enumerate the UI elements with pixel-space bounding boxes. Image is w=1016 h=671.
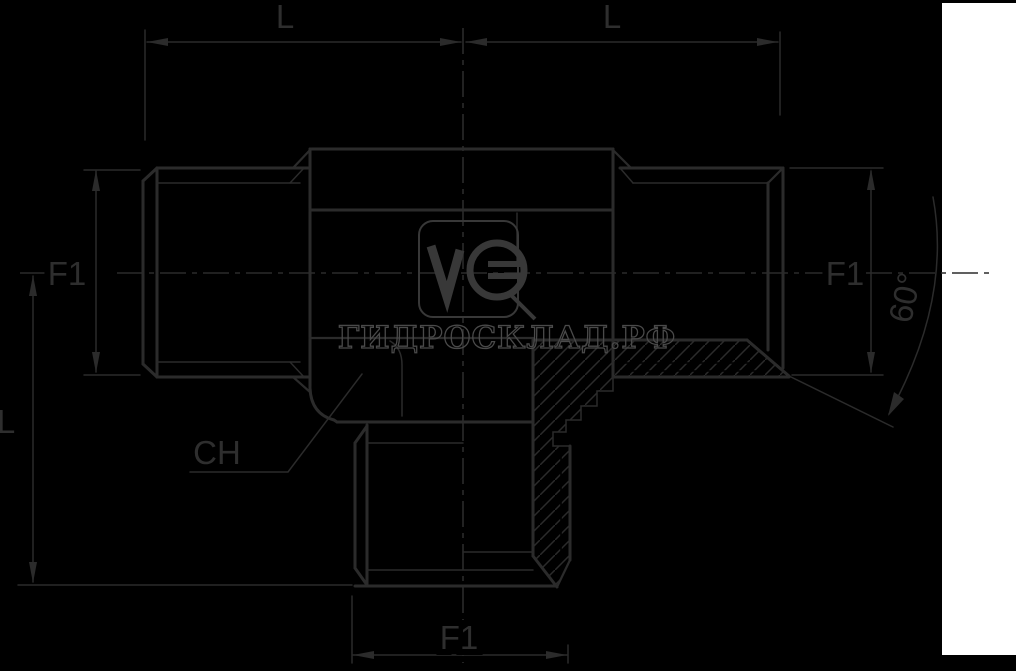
- callout-label: CH: [193, 434, 241, 471]
- chamfer-line: [143, 168, 157, 181]
- thread-runout: [290, 168, 304, 183]
- arrowhead: [867, 169, 875, 190]
- dimension-top-left-length: L: [145, 0, 461, 140]
- arrowhead: [147, 38, 168, 46]
- drawing-canvas: L L F1 L: [0, 0, 1016, 671]
- arrowhead: [29, 275, 37, 296]
- angle-label: 60°: [881, 269, 928, 326]
- tee-fitting-technical-drawing: L L F1 L: [0, 0, 1016, 671]
- angle-leg-line: [789, 376, 893, 427]
- thread-runout: [290, 362, 304, 377]
- arrowhead: [440, 38, 461, 46]
- hex-chamfer: [613, 150, 631, 168]
- arrowhead: [353, 651, 374, 659]
- dimension-right-thread: F1: [790, 168, 883, 375]
- logo-g-glyph: [470, 243, 524, 297]
- hex-chamfer: [293, 377, 310, 392]
- dimension-label: L: [0, 403, 15, 440]
- hex-chamfer: [293, 150, 310, 168]
- watermark-text: ГИДРОСКЛАД.РФ: [338, 320, 676, 356]
- logo-tail: [509, 293, 535, 319]
- arrowhead: [757, 38, 778, 46]
- dimension-top-right-length: L: [466, 0, 780, 115]
- dimension-label: L: [276, 0, 294, 35]
- logo-v-glyph: [431, 246, 460, 297]
- dimension-label: F1: [48, 255, 87, 292]
- chamfer-line: [143, 364, 157, 377]
- thread-runout: [620, 168, 633, 183]
- vg-logo: [419, 221, 535, 319]
- chamfer-line: [768, 168, 783, 183]
- arrowhead: [867, 352, 875, 373]
- arrowhead: [92, 352, 100, 373]
- arrowhead: [466, 38, 487, 46]
- dimension-left-branch-length: L: [0, 275, 352, 585]
- chamfer-line: [355, 426, 367, 443]
- arrowhead: [888, 392, 904, 416]
- callout-cone-angle: 60°: [789, 197, 937, 427]
- dimension-bottom-thread: F1: [352, 596, 568, 663]
- dimension-label: L: [603, 0, 621, 35]
- dimension-label: F1: [826, 255, 865, 292]
- chamfer-line: [355, 568, 367, 585]
- arrowhead: [546, 651, 567, 659]
- dimension-label: F1: [440, 619, 479, 656]
- fillet: [310, 388, 337, 422]
- arrowhead: [29, 562, 37, 583]
- arrowhead: [92, 170, 100, 191]
